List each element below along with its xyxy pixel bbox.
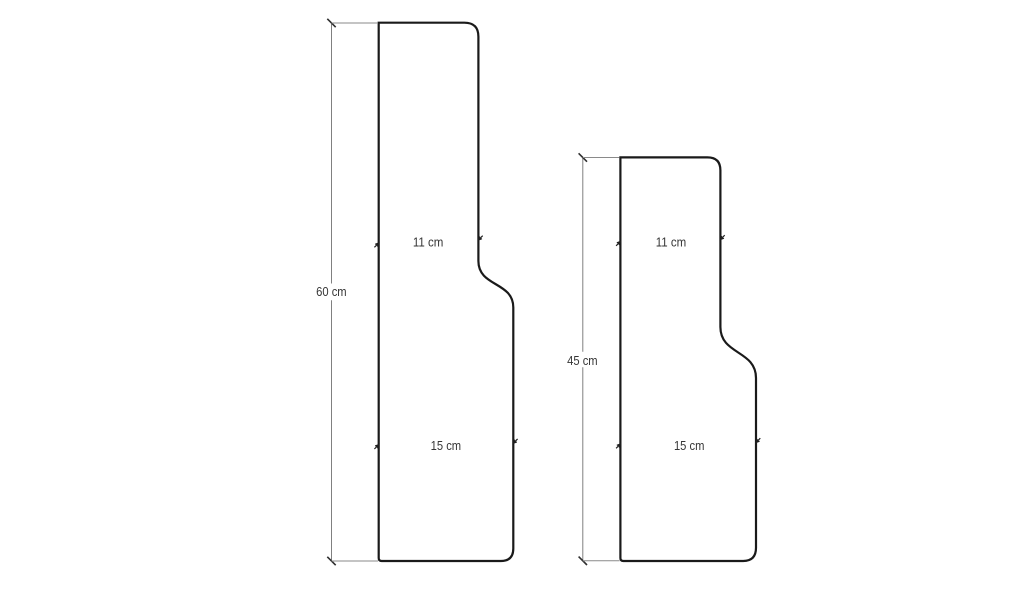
svg-text:11 cm: 11 cm	[413, 235, 444, 250]
svg-text:60 cm: 60 cm	[316, 284, 347, 299]
svg-text:15 cm: 15 cm	[431, 438, 462, 453]
svg-text:15 cm: 15 cm	[674, 438, 705, 453]
svg-text:45 cm: 45 cm	[567, 353, 598, 368]
svg-text:11 cm: 11 cm	[656, 234, 687, 249]
